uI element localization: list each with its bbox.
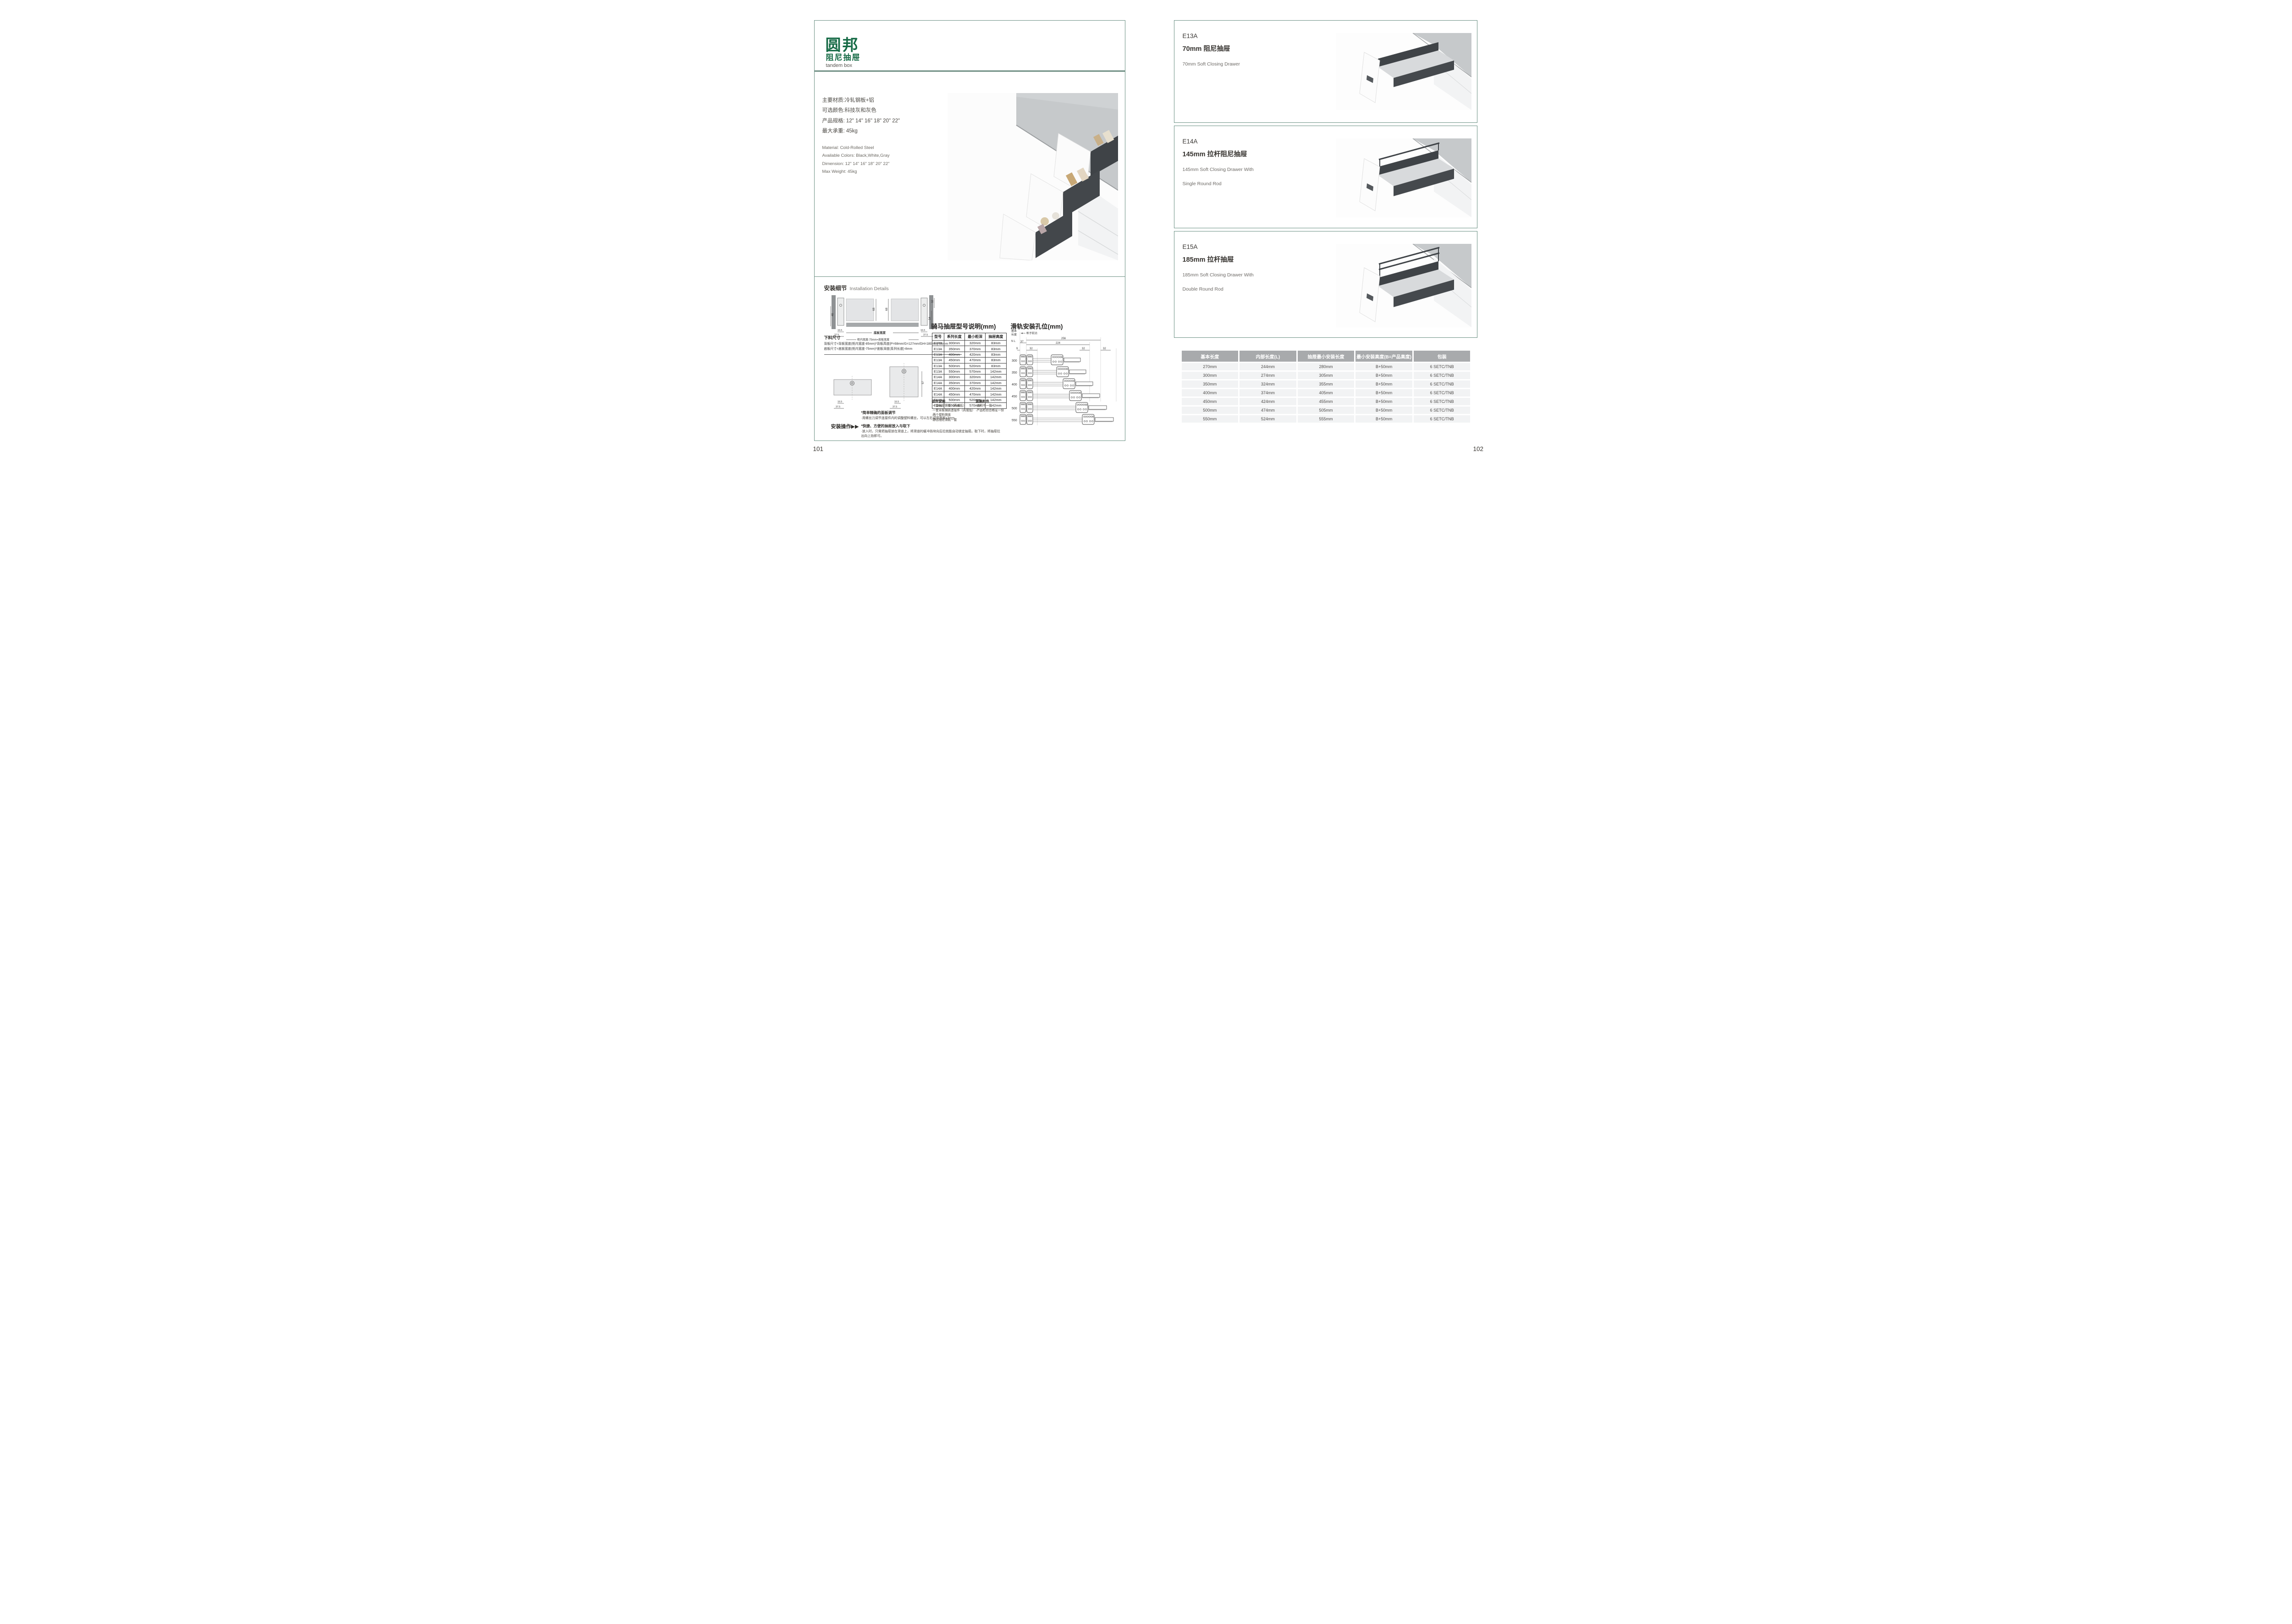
label-width-formula: 柜内宽度-75mm=底板宽度 [857, 338, 889, 341]
note-title: *快捷、方便的抽屉放入与取下 [861, 424, 1003, 429]
product-title-en: 145mm Soft Closing Drawer With Single Ro… [1183, 160, 1254, 187]
rail-dim-9: 9 [1016, 347, 1018, 350]
cutting-size-heading: 下料尺寸 [824, 335, 841, 341]
size-table-cell: B+50mm [1355, 398, 1412, 405]
components-note: 组件说明 ·一套抽屉侧板（高或低） ·一套背板钢质连接件（高或低） ·两个塑料侧… [932, 399, 974, 423]
rail-row: 350 [1012, 367, 1086, 377]
size-table-header: 基本长度 [1182, 351, 1239, 362]
model-table: 型号系列长度最小柜深抽屉高度 E13A300mm320mm83mmE13A350… [932, 333, 1007, 409]
label-bottom-width: 底板宽度 [874, 330, 886, 335]
brand-header: 圆邦 阻尼抽屉 tandem box [815, 21, 1125, 72]
size-table-cell: 6 SETC/TNB [1414, 380, 1471, 388]
double-arrow-icon: ▶▶ [851, 424, 859, 429]
model-table-row: E14A400mm420mm142mm [932, 386, 1006, 391]
brand-subtitle: 阻尼抽屉 [826, 51, 861, 62]
size-table-cell: 244mm [1240, 363, 1296, 370]
product-model: E15A [1183, 243, 1198, 250]
model-table-body: E13A300mm320mm83mmE13A350mm370mm83mmE13A… [932, 341, 1006, 409]
model-table-header: 系列长度 [944, 333, 964, 341]
size-table-cell: 374mm [1240, 389, 1296, 396]
dim-16-5-left: 16.5 [837, 329, 842, 332]
svg-text:550: 550 [1012, 419, 1017, 422]
left-page: 圆邦 阻尼抽屉 tandem box 主要材质:冷轧钢板+铝 可选颜色:科技灰和… [814, 20, 1125, 441]
product-title-cn: 145mm 拉杆阻尼抽屉 [1183, 149, 1247, 159]
product-model: E14A [1183, 138, 1198, 145]
product-card-e15a: E15A 185mm 拉杆抽屉 185mm Soft Closing Drawe… [1174, 231, 1477, 338]
rail-hole-diagram: 基本 长度 N L 柜子前沿 256 224 37 9 32 32 32 300 [1011, 328, 1121, 428]
size-table-cell: B+50mm [1355, 415, 1412, 423]
svg-text:350: 350 [1012, 371, 1017, 374]
spec-line-cn: 产品规格: 12" 14" 16" 18" 20" 22" [822, 116, 944, 126]
size-table-cell: 6 SETC/TNB [1414, 398, 1471, 405]
rail-row: 550 [1012, 414, 1113, 424]
product-photo-e14a [1336, 138, 1471, 217]
size-table-cell: 555mm [1298, 415, 1355, 423]
size-table-cell: 300mm [1182, 372, 1239, 379]
size-table-cell: B+50mm [1355, 389, 1412, 396]
size-table-cell: 455mm [1298, 398, 1355, 405]
model-table-row: E13A500mm520mm83mm [932, 363, 1006, 369]
drawer-illustration-70mm [1336, 33, 1471, 110]
rail-dim-32c: 32 [1103, 347, 1106, 350]
svg-text:400: 400 [1012, 383, 1017, 386]
size-table-cell: 6 SETC/TNB [1414, 407, 1471, 414]
model-table-header: 型号 [932, 333, 944, 341]
rail-row: 300 [1012, 355, 1080, 365]
svg-text:500: 500 [1012, 407, 1017, 410]
cut-dim-16-5-left: 16.5 [837, 401, 842, 403]
spec-line-en: Material: Cold-Rolled Steel [822, 144, 944, 152]
size-table-cell: 6 SETC/TNB [1414, 363, 1471, 370]
product-photo-e13a [1336, 33, 1471, 110]
product-photo-e15a [1336, 244, 1471, 327]
rail-row: 500 [1012, 402, 1107, 413]
product-specs: 主要材质:冷轧钢板+铝 可选颜色:科技灰和灰色 产品规格: 12" 14" 16… [822, 95, 944, 176]
size-table-header: 最小安装高度(B=产品高度) [1355, 351, 1412, 362]
product-title-cn: 70mm 阻尼抽屉 [1183, 44, 1230, 53]
spec-line-cn: 主要材质:冷轧钢板+铝 [822, 95, 944, 105]
spec-line-cn: 最大承重: 45kg [822, 126, 944, 136]
rail-row: 450 [1012, 391, 1100, 401]
product-overview-section: 主要材质:冷轧钢板+铝 可选颜色:科技灰和灰色 产品规格: 12" 14" 16… [815, 72, 1125, 277]
size-table-header: 内部长度(L) [1240, 351, 1296, 362]
size-table-cell: 270mm [1182, 363, 1239, 370]
drawer-illustration-185mm [1336, 244, 1471, 327]
model-table-head: 型号系列长度最小柜深抽屉高度 [932, 333, 1006, 341]
model-table-row: E14A300mm320mm142mm [932, 374, 1006, 380]
rail-dim-224: 224 [1056, 342, 1061, 345]
model-table-row: E13A350mm370mm83mm [932, 346, 1006, 352]
spec-line-en: Available Colors: Black,White,Gray [822, 152, 944, 160]
size-table-cell: 305mm [1298, 372, 1355, 379]
rail-dim-256: 256 [1061, 337, 1066, 340]
size-table-header: 抽屉最小安装长度 [1298, 351, 1355, 362]
cut-dim-16-5-right: 16.5 [894, 401, 899, 403]
size-table-cell: 400mm [1182, 389, 1239, 396]
rail-dim-37: 37 [1020, 341, 1024, 343]
size-table-cell: 524mm [1240, 415, 1296, 423]
dim-32: 32 [931, 300, 934, 303]
size-table-cell: 405mm [1298, 389, 1355, 396]
size-table-cell: 6 SETC/TNB [1414, 372, 1471, 379]
installation-heading-cn: 安装细节 [824, 285, 847, 292]
size-table-cell: 274mm [1240, 372, 1296, 379]
catalog-spread: 圆邦 阻尼抽屉 tandem box 主要材质:冷轧钢板+铝 可选颜色:科技灰和… [792, 0, 1501, 462]
dim-68-right: 68 [886, 308, 888, 311]
product-card-e13a: E13A 70mm 阻尼抽屉 70mm Soft Closing Drawer [1174, 20, 1477, 123]
size-table-cell: B+50mm [1355, 372, 1412, 379]
size-table-cell: B+50mm [1355, 380, 1412, 388]
spec-line-en: Dimension: 12" 14" 16" 18" 20" 22" [822, 160, 944, 168]
size-table-cell: 355mm [1298, 380, 1355, 388]
page-number-left: 101 [813, 446, 824, 452]
rail-row: 400 [1012, 379, 1093, 389]
size-table: 基本长度内部长度(L)抽屉最小安装长度最小安装高度(B=产品高度)包装270mm… [1182, 351, 1471, 423]
size-table-cell: 505mm [1298, 407, 1355, 414]
cut-dim-37-5-left: 37.5 [836, 406, 840, 408]
dim-54: 54 [929, 317, 931, 320]
rail-axis-label-2: 长度 [1011, 333, 1017, 336]
size-table-cell: 6 SETC/TNB [1414, 389, 1471, 396]
brand-tagline: tandem box [826, 63, 852, 68]
size-table-header: 包装 [1414, 351, 1471, 362]
size-table-cell: 550mm [1182, 415, 1239, 423]
size-table-cell: 6 SETC/TNB [1414, 415, 1471, 423]
size-table-cell: 500mm [1182, 407, 1239, 414]
size-table-cell: 350mm [1182, 380, 1239, 388]
model-table-row: E13A300mm320mm83mm [932, 341, 1006, 346]
hero-product-photo [948, 93, 1118, 260]
rail-front-edge-label: 柜子前沿 [1026, 331, 1037, 335]
packing-note: 装箱附件 ·说明书一份 ·产品检验合格证一份 [976, 399, 1013, 413]
model-table-row: E14A350mm370mm142mm [932, 380, 1006, 385]
installation-section: 安装细节 Installation Details 68 68 32 [815, 277, 1125, 441]
product-model: E13A [1183, 33, 1198, 39]
spec-line-en: Max Weight: 45kg [822, 168, 944, 176]
size-table-cell: B+50mm [1355, 363, 1412, 370]
dim-16-5-right: 16.5 [920, 329, 925, 332]
dim-46: 46 [832, 313, 834, 316]
cross-section-diagram: 68 68 32 46 54 16.5 37.5 16.5 37.5 底板宽度 [830, 292, 935, 348]
size-table-cell: 474mm [1240, 407, 1296, 414]
model-table-title: 骑马抽屉型号说明(mm) [931, 321, 996, 330]
installation-heading-en: Installation Details [850, 286, 889, 292]
right-page: E13A 70mm 阻尼抽屉 70mm Soft Closing Drawer [1174, 0, 1477, 462]
spec-english-block: Material: Cold-Rolled Steel Available Co… [822, 144, 944, 176]
svg-text:450: 450 [1012, 395, 1017, 398]
page-number-right: 102 [1473, 446, 1484, 452]
rail-axis-label-1: 基本 [1011, 329, 1017, 333]
dim-68-left: 68 [873, 308, 876, 311]
rail-dim-32b: 32 [1082, 347, 1085, 350]
product-title-cn: 185mm 拉杆抽屉 [1183, 254, 1234, 264]
spec-line-cn: 可选颜色:科技灰和灰色 [822, 105, 944, 116]
model-table-header: 抽屉高度 [986, 333, 1006, 341]
operation-label: 安装操作▶▶ [831, 423, 859, 430]
size-table-cell: 280mm [1298, 363, 1355, 370]
installation-heading: 安装细节 Installation Details [824, 283, 889, 292]
dim-37-5-right: 37.5 [923, 334, 928, 336]
size-table-cell: 450mm [1182, 398, 1239, 405]
size-table-cell: 324mm [1240, 380, 1296, 388]
svg-text:300: 300 [1012, 359, 1017, 363]
model-table-row: E13A550mm570mm142mm [932, 369, 1006, 374]
product-card-e14a: E14A 145mm 拉杆阻尼抽屉 145mm Soft Closing Dra… [1174, 126, 1477, 228]
note-body: ·放入时，只需把抽屉放在滑道上，将滑道的缓冲挡块向后拉就能自动锁定抽屉。取下时，… [861, 429, 1003, 439]
rail-dim-32a: 32 [1030, 347, 1033, 350]
size-table-cell: B+50mm [1355, 407, 1412, 414]
cut-dim-57: 57 [922, 381, 925, 384]
product-title-en: 185mm Soft Closing Drawer With Double Ro… [1183, 265, 1254, 293]
model-table-row: E13A400mm420mm83mm [932, 352, 1006, 357]
rail-axis-label-3: N L [1011, 340, 1016, 343]
rail-rows: 300350400450500550 [1012, 355, 1113, 424]
model-table-header: 最小柜深 [964, 333, 985, 341]
drawer-illustration-145mm [1336, 138, 1471, 217]
model-table-row: E13A450mm470mm83mm [932, 358, 1006, 363]
model-table-row: E14A450mm470mm142mm [932, 391, 1006, 397]
hero-drawer-illustration [948, 93, 1118, 260]
product-title-en: 70mm Soft Closing Drawer [1183, 54, 1240, 82]
size-table-cell: 424mm [1240, 398, 1296, 405]
